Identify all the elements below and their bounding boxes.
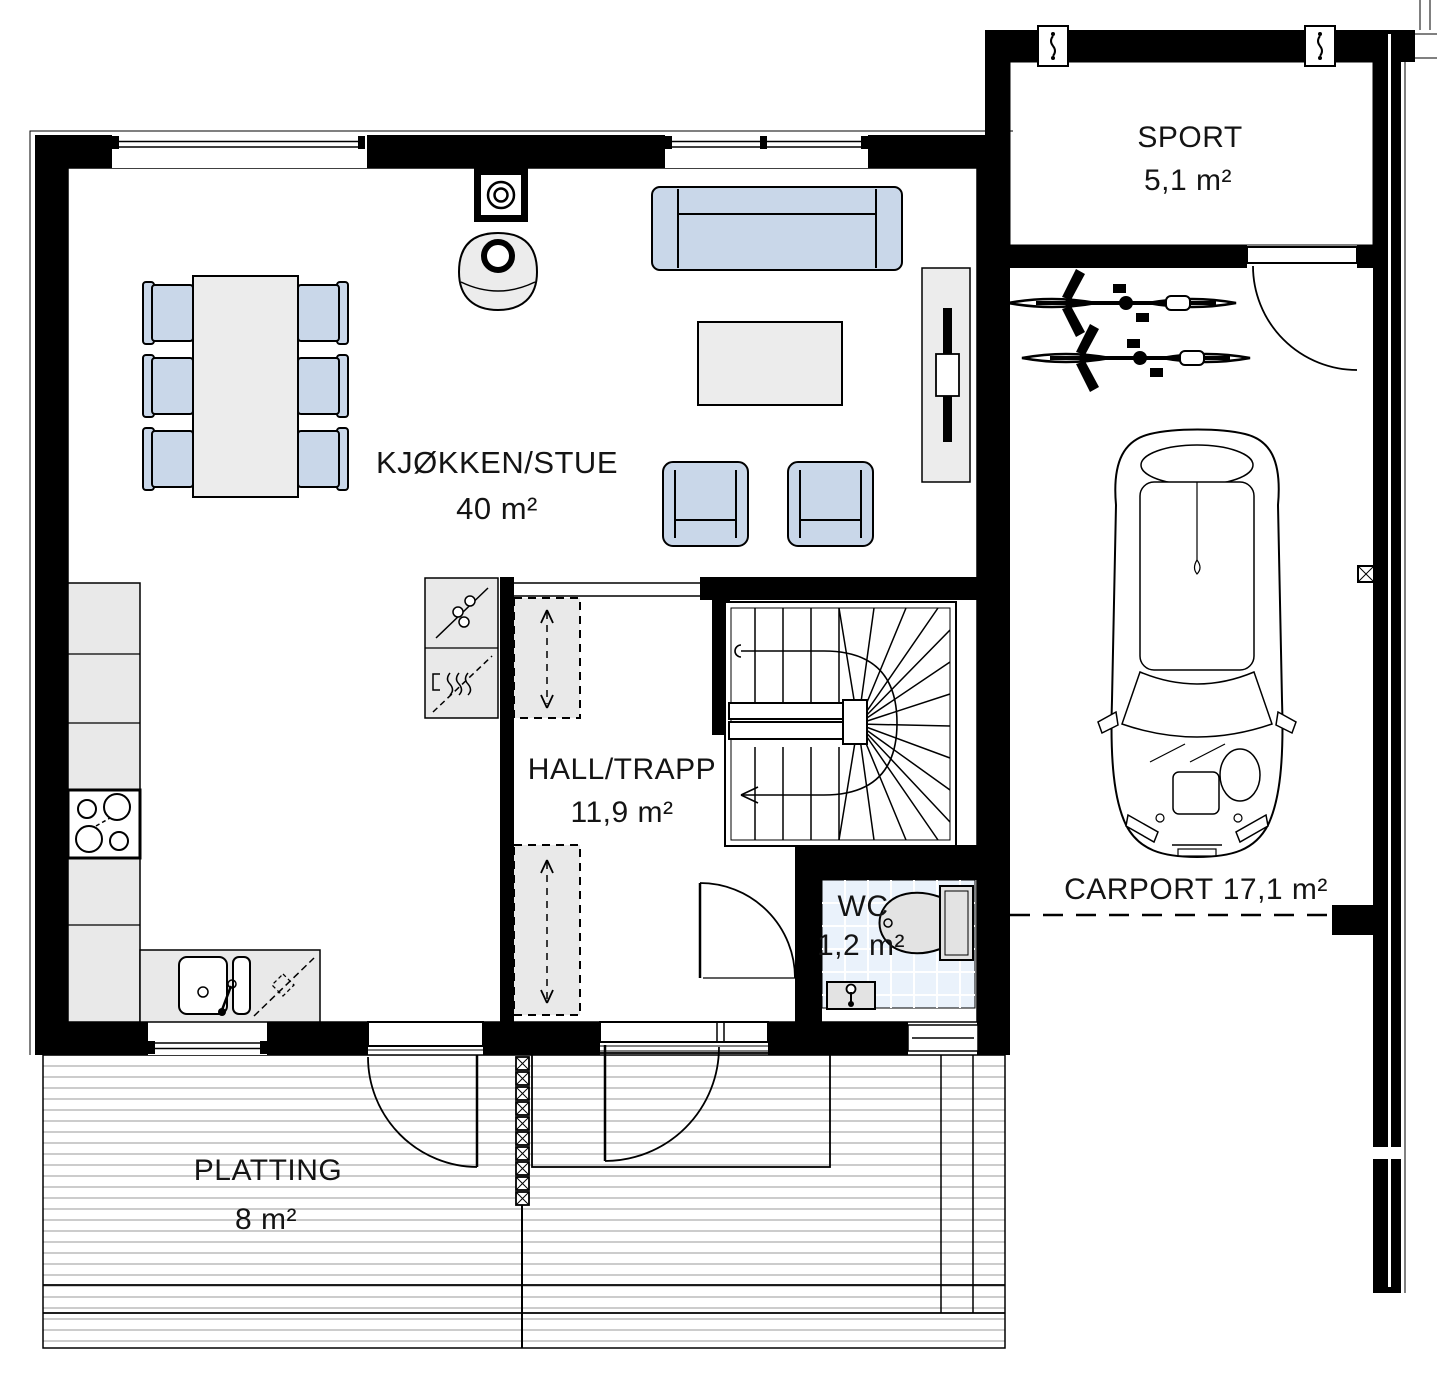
floor-plan-page: KJØKKEN/STUE 40 m² HALL/TRAPP 11,9 m² WC…	[0, 0, 1437, 1393]
window-south-1	[148, 1022, 267, 1055]
sport-door	[1247, 247, 1357, 370]
east-wall	[1373, 30, 1401, 1293]
label-platting-area: 8 m²	[235, 1203, 297, 1236]
label-sport-area: 5,1 m²	[1144, 164, 1232, 197]
label-wc-area: 1,2 m²	[817, 929, 905, 962]
car	[1098, 430, 1296, 858]
dining-set	[143, 276, 348, 497]
floor-plan-drawing: KJØKKEN/STUE 40 m² HALL/TRAPP 11,9 m² WC…	[0, 0, 1437, 1393]
wc-sink	[827, 982, 875, 1009]
label-sport: SPORT	[1137, 121, 1242, 154]
bicycle	[1022, 324, 1250, 392]
wood-stove	[459, 233, 537, 310]
label-kitchen-living: KJØKKEN/STUE	[376, 445, 618, 480]
window-north-2	[665, 135, 868, 168]
label-carport: CARPORT17,1 m²	[1064, 873, 1328, 906]
wardrobe	[514, 598, 580, 718]
chimney	[474, 168, 528, 222]
stair-newel	[843, 700, 867, 744]
coffee-table	[698, 322, 842, 405]
deck-platting	[43, 1045, 1005, 1348]
label-wc: WC	[838, 890, 889, 923]
carport-post	[1332, 905, 1377, 935]
wc-window	[908, 1025, 978, 1051]
bicycle	[1008, 269, 1236, 337]
armchair	[788, 462, 873, 546]
sport-south-wall	[1003, 245, 1247, 268]
sofa	[652, 187, 902, 270]
label-kitchen-living-area: 40 m²	[456, 491, 538, 526]
window-north-1	[112, 135, 367, 168]
stair-top-wall	[700, 577, 977, 600]
label-hall-area: 11,9 m²	[571, 796, 674, 829]
post-marker	[1038, 26, 1068, 66]
hall-west-wall	[500, 577, 514, 1022]
tv-bench	[922, 268, 970, 482]
wc-door	[700, 883, 795, 978]
entrance-door-opening	[600, 1022, 768, 1051]
label-platting: PLATTING	[194, 1154, 342, 1187]
post-marker	[1305, 26, 1335, 66]
wardrobe	[514, 845, 580, 1015]
dining-table	[193, 276, 298, 497]
hall-opening-header	[514, 583, 700, 596]
cooktop	[68, 790, 140, 858]
kitchen-sink	[179, 957, 250, 1016]
fridge-oven-cabinet	[425, 578, 498, 718]
armchair	[663, 462, 748, 546]
kitchen	[68, 578, 498, 1022]
winder-staircase	[725, 602, 956, 846]
label-hall: HALL/TRAPP	[528, 753, 716, 786]
balcony-door-opening	[368, 1022, 483, 1050]
